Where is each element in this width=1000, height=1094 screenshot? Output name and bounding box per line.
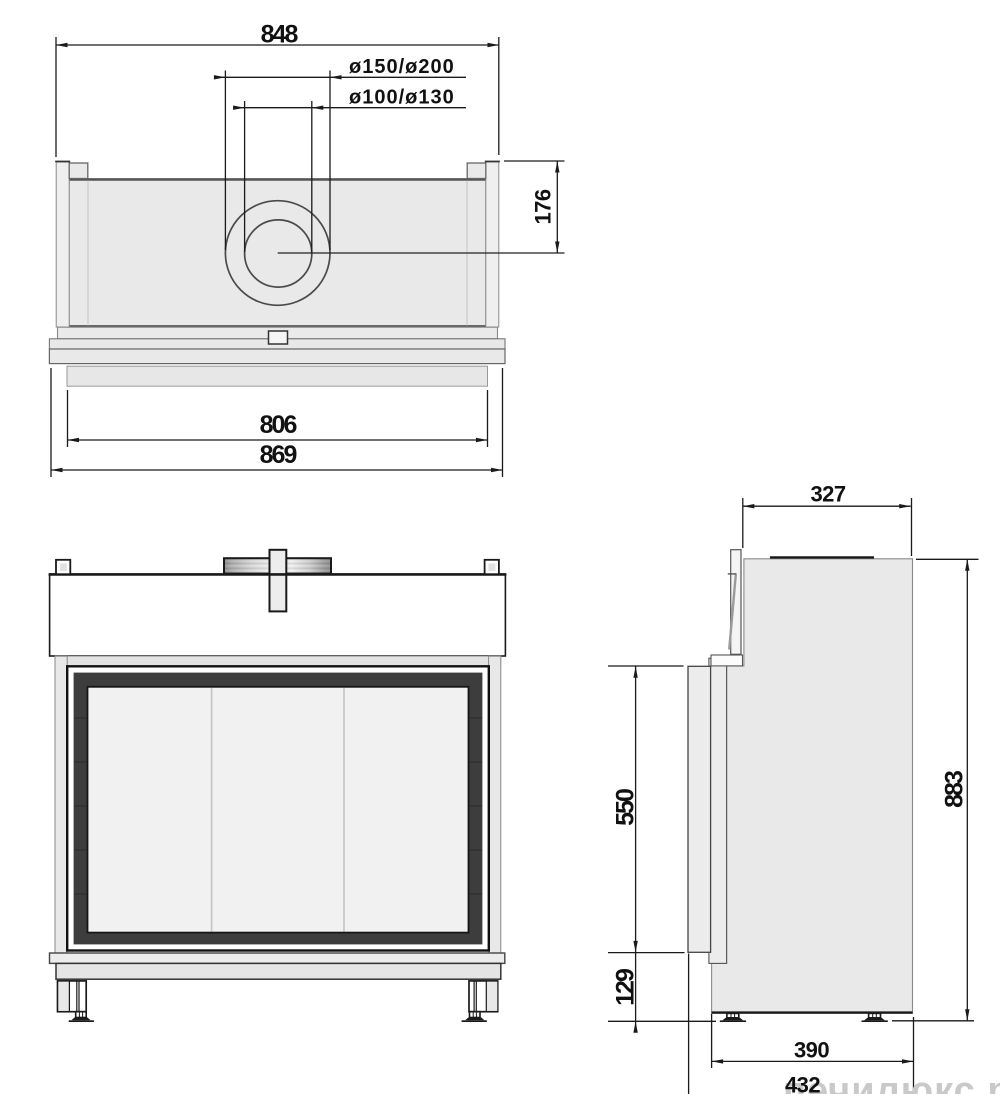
svg-text:432: 432: [785, 1072, 820, 1094]
svg-text:ø100/ø130: ø100/ø130: [349, 87, 455, 109]
svg-text:ø150/ø200: ø150/ø200: [349, 56, 455, 78]
svg-text:869: 869: [260, 441, 297, 469]
svg-text:129: 129: [612, 969, 640, 1006]
svg-text:883: 883: [941, 771, 969, 808]
svg-text:550: 550: [612, 789, 640, 826]
svg-text:176: 176: [531, 189, 556, 224]
svg-text:848: 848: [261, 21, 299, 49]
svg-text:806: 806: [260, 411, 297, 439]
svg-text:327: 327: [811, 482, 846, 507]
svg-text:390: 390: [794, 1038, 829, 1063]
